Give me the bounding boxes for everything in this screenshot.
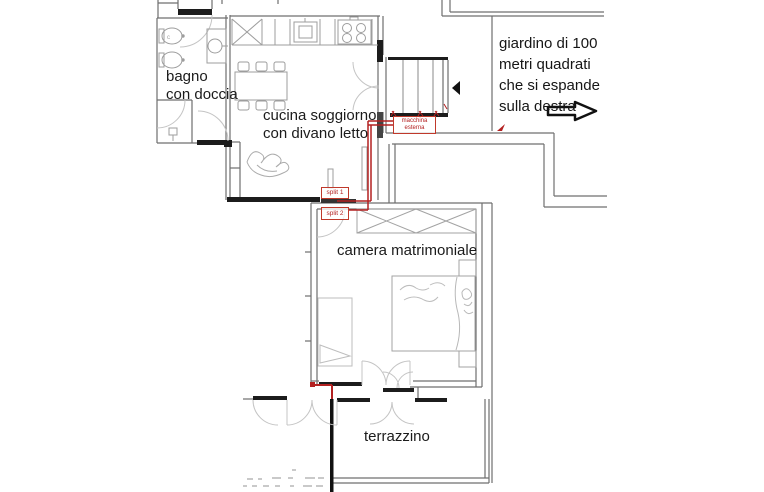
black-pipe-line xyxy=(330,399,334,492)
bedroom-label: camera matrimoniale xyxy=(337,242,477,260)
kitchen-living-label-line2: con divano letto xyxy=(263,125,376,143)
outdoor-unit-annotation: macchina esterna xyxy=(393,116,436,134)
sofa-sketch xyxy=(247,152,289,177)
kitchen-fixtures xyxy=(232,17,378,190)
red-mark xyxy=(497,124,505,131)
kitchen-living-label: cucina soggiorno con divano letto xyxy=(263,107,376,143)
stairs-direction-arrow-icon xyxy=(452,81,460,95)
split1-annotation: split 1 xyxy=(321,187,349,199)
garden-note-line1: giardino di 100 xyxy=(499,33,600,54)
split2-annotation: split 2 xyxy=(321,207,349,220)
floor-plan: c xyxy=(0,0,764,492)
bedroom-furniture xyxy=(318,209,476,367)
terrace-label: terrazzino xyxy=(364,428,430,446)
garden-note-line2: metri quadrati xyxy=(499,54,600,75)
garden-note-line4: sulla destra xyxy=(499,96,600,117)
garden-note-line3: che si espande xyxy=(499,75,600,96)
bathroom-label-line2: con doccia xyxy=(166,86,238,104)
kitchen-living-label-line1: cucina soggiorno xyxy=(263,107,376,125)
outdoor-unit-line1: macchina xyxy=(402,118,428,125)
bathroom-label: bagno con doccia xyxy=(166,68,238,104)
svg-text:c: c xyxy=(167,35,170,41)
garden-note: giardino di 100 metri quadrati che si es… xyxy=(499,33,600,117)
illegible-marks xyxy=(243,470,324,486)
stairs xyxy=(403,60,433,113)
outdoor-unit-line2: esterna xyxy=(404,125,424,132)
bathroom-label-line1: bagno xyxy=(166,68,238,86)
